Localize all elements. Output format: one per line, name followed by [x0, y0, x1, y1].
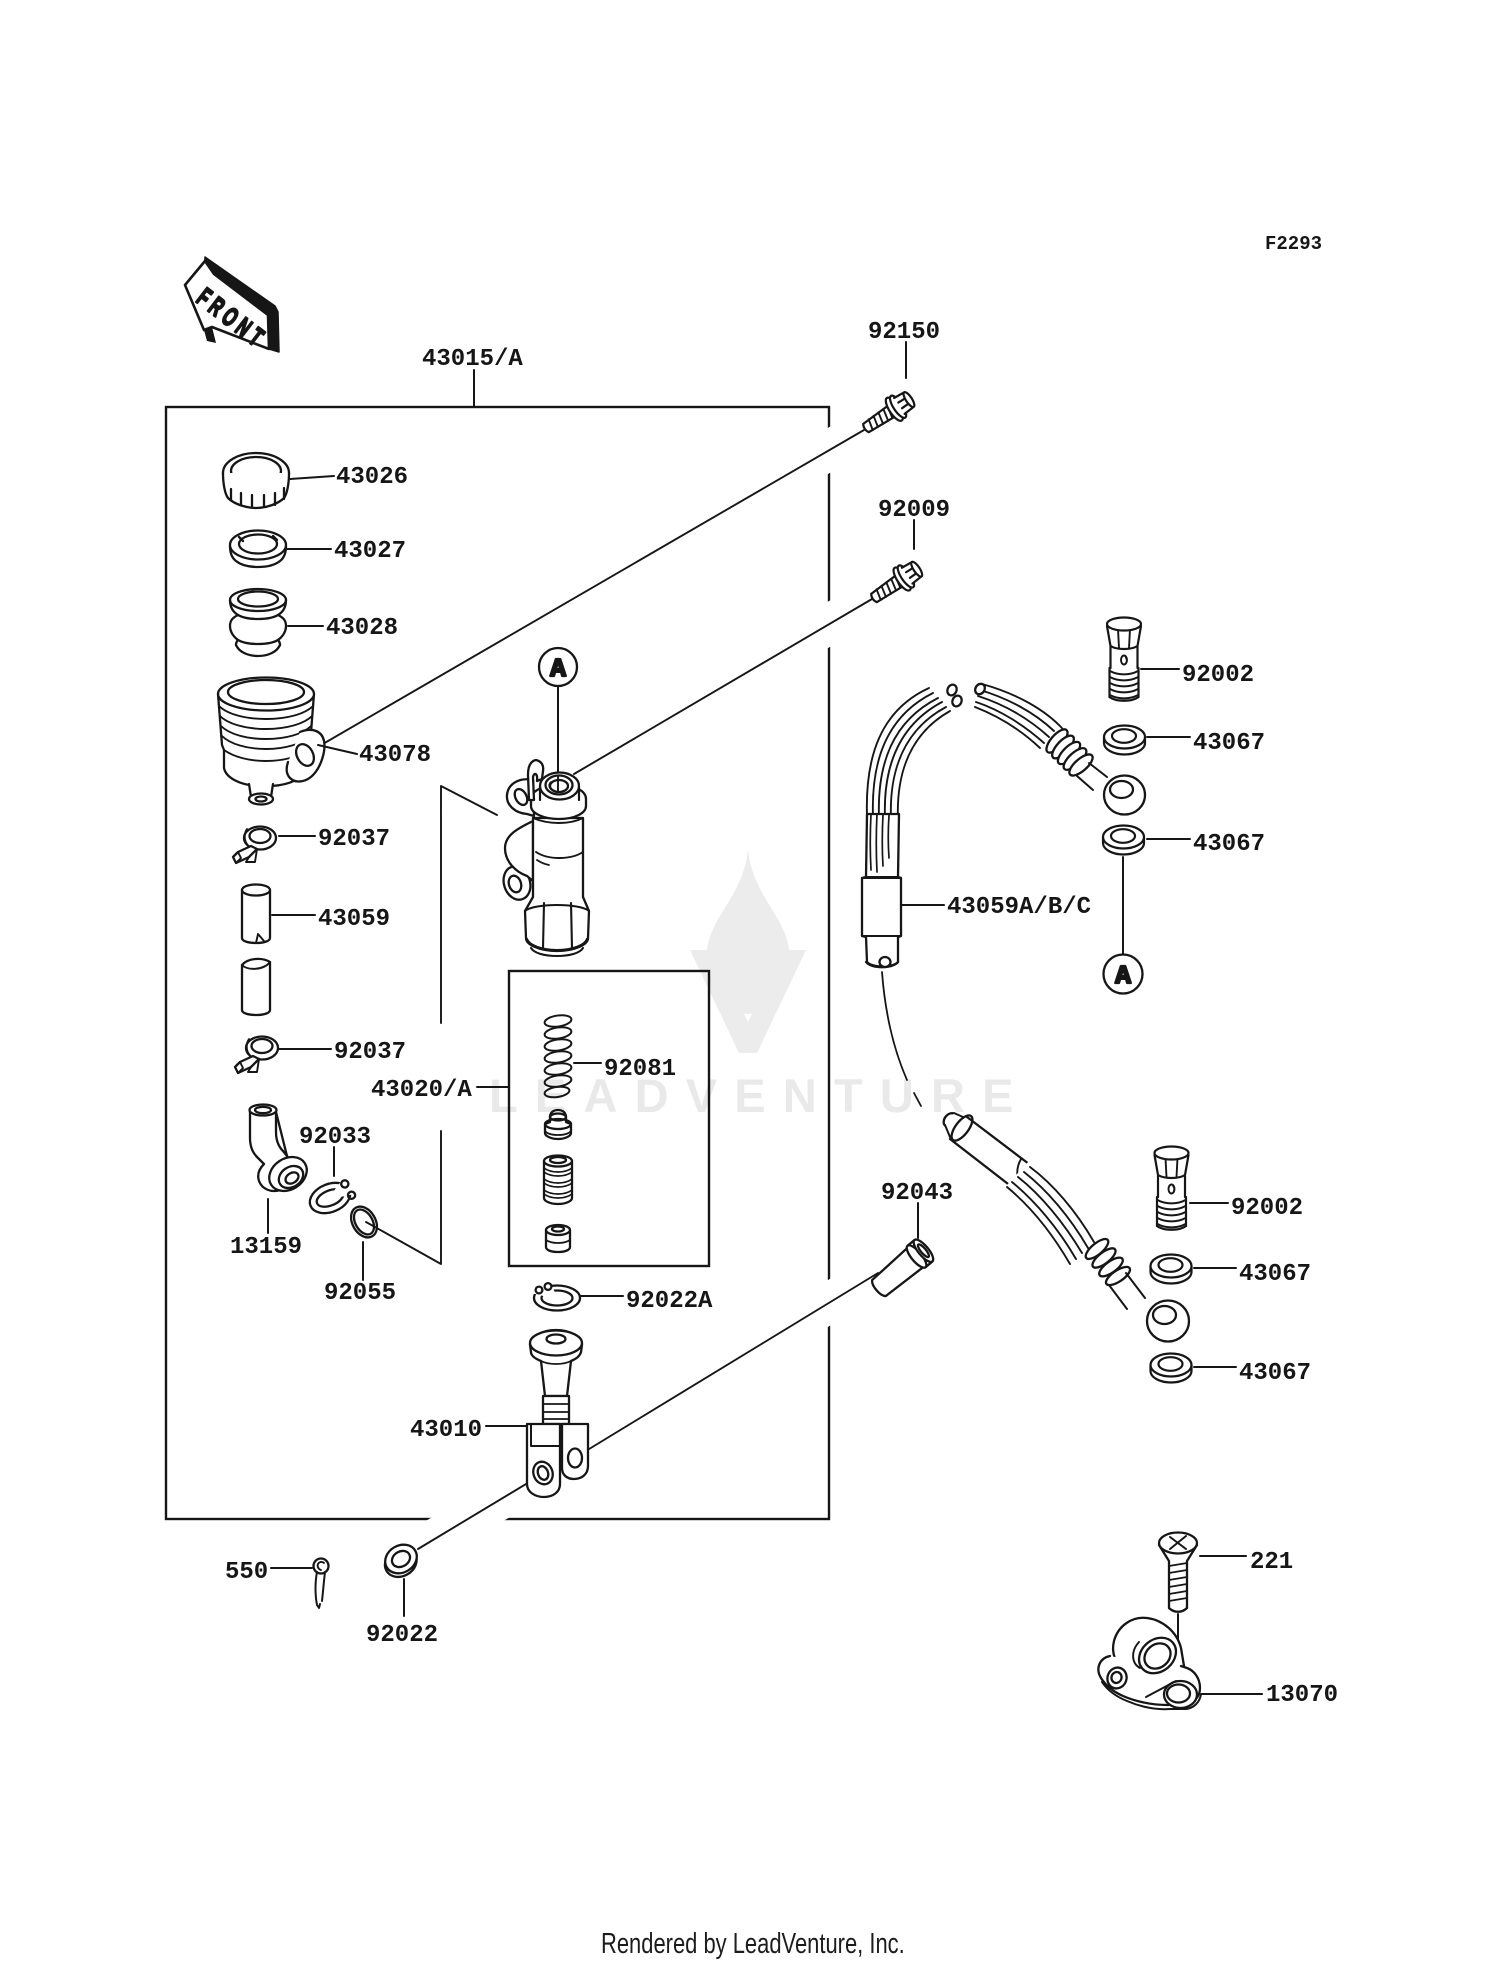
svg-text:92002: 92002	[1231, 1195, 1303, 1222]
svg-text:92043: 92043	[881, 1180, 953, 1207]
svg-text:43026: 43026	[336, 464, 408, 491]
svg-text:92037: 92037	[334, 1039, 406, 1066]
svg-text:43010: 43010	[410, 1417, 482, 1444]
svg-text:Rendered by LeadVenture, Inc.: Rendered by LeadVenture, Inc.	[601, 1928, 905, 1960]
svg-text:43028: 43028	[326, 615, 398, 642]
svg-text:43027: 43027	[334, 538, 406, 565]
svg-text:43078: 43078	[359, 742, 431, 769]
svg-text:43067: 43067	[1193, 730, 1265, 757]
svg-text:92033: 92033	[299, 1124, 371, 1151]
svg-text:A: A	[550, 654, 566, 684]
svg-text:92022A: 92022A	[626, 1288, 713, 1315]
svg-text:92009: 92009	[878, 497, 950, 524]
svg-text:43059A/B/C: 43059A/B/C	[947, 894, 1091, 921]
svg-text:13159: 13159	[230, 1234, 302, 1261]
svg-text:43067: 43067	[1239, 1360, 1311, 1387]
svg-text:A: A	[1115, 961, 1131, 991]
svg-text:13070: 13070	[1266, 1682, 1338, 1709]
svg-text:92037: 92037	[318, 826, 390, 853]
svg-text:550: 550	[225, 1559, 268, 1586]
svg-text:92081: 92081	[604, 1056, 676, 1083]
svg-text:92022: 92022	[366, 1622, 438, 1649]
svg-text:43015/A: 43015/A	[422, 346, 523, 373]
svg-text:92150: 92150	[868, 319, 940, 346]
svg-text:F2293: F2293	[1265, 233, 1322, 255]
svg-text:221: 221	[1250, 1549, 1293, 1576]
svg-text:43067: 43067	[1239, 1261, 1311, 1288]
svg-text:43067: 43067	[1193, 831, 1265, 858]
svg-text:43020/A: 43020/A	[371, 1077, 472, 1104]
svg-text:92055: 92055	[324, 1280, 396, 1307]
svg-text:43059: 43059	[318, 906, 390, 933]
svg-text:92002: 92002	[1182, 662, 1254, 689]
